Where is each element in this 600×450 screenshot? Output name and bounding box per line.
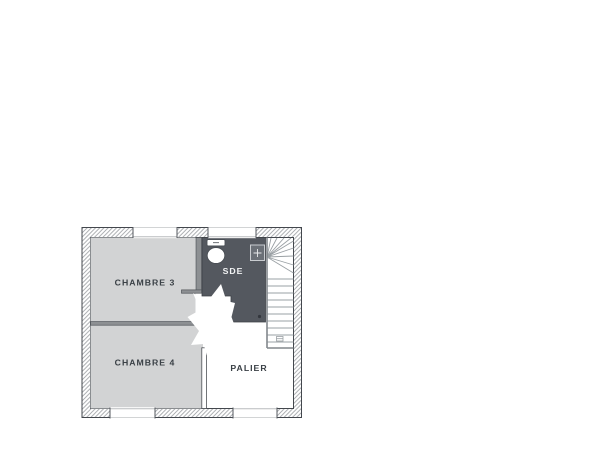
window-bottom-right <box>233 407 277 419</box>
floor-plan-drawing: CHAMBRE 3 CHAMBRE 4 SDE PALIER <box>0 0 600 450</box>
room-label-palier: PALIER <box>230 363 267 373</box>
staircase-icon <box>267 238 294 349</box>
washbasin-icon <box>251 245 265 261</box>
window-bottom-left <box>110 407 155 419</box>
drain-icon <box>258 315 261 318</box>
room-label-chambre-3: CHAMBRE 3 <box>115 278 176 288</box>
window-top-right <box>208 227 256 239</box>
stair-direction-marker <box>277 337 284 342</box>
floor-plan-canvas: CHAMBRE 3 CHAMBRE 4 SDE PALIER <box>0 0 600 450</box>
room-label-chambre-4: CHAMBRE 4 <box>115 358 176 368</box>
room-label-sde: SDE <box>223 266 244 276</box>
toilet-icon <box>207 240 225 264</box>
window-top-left <box>133 227 177 239</box>
